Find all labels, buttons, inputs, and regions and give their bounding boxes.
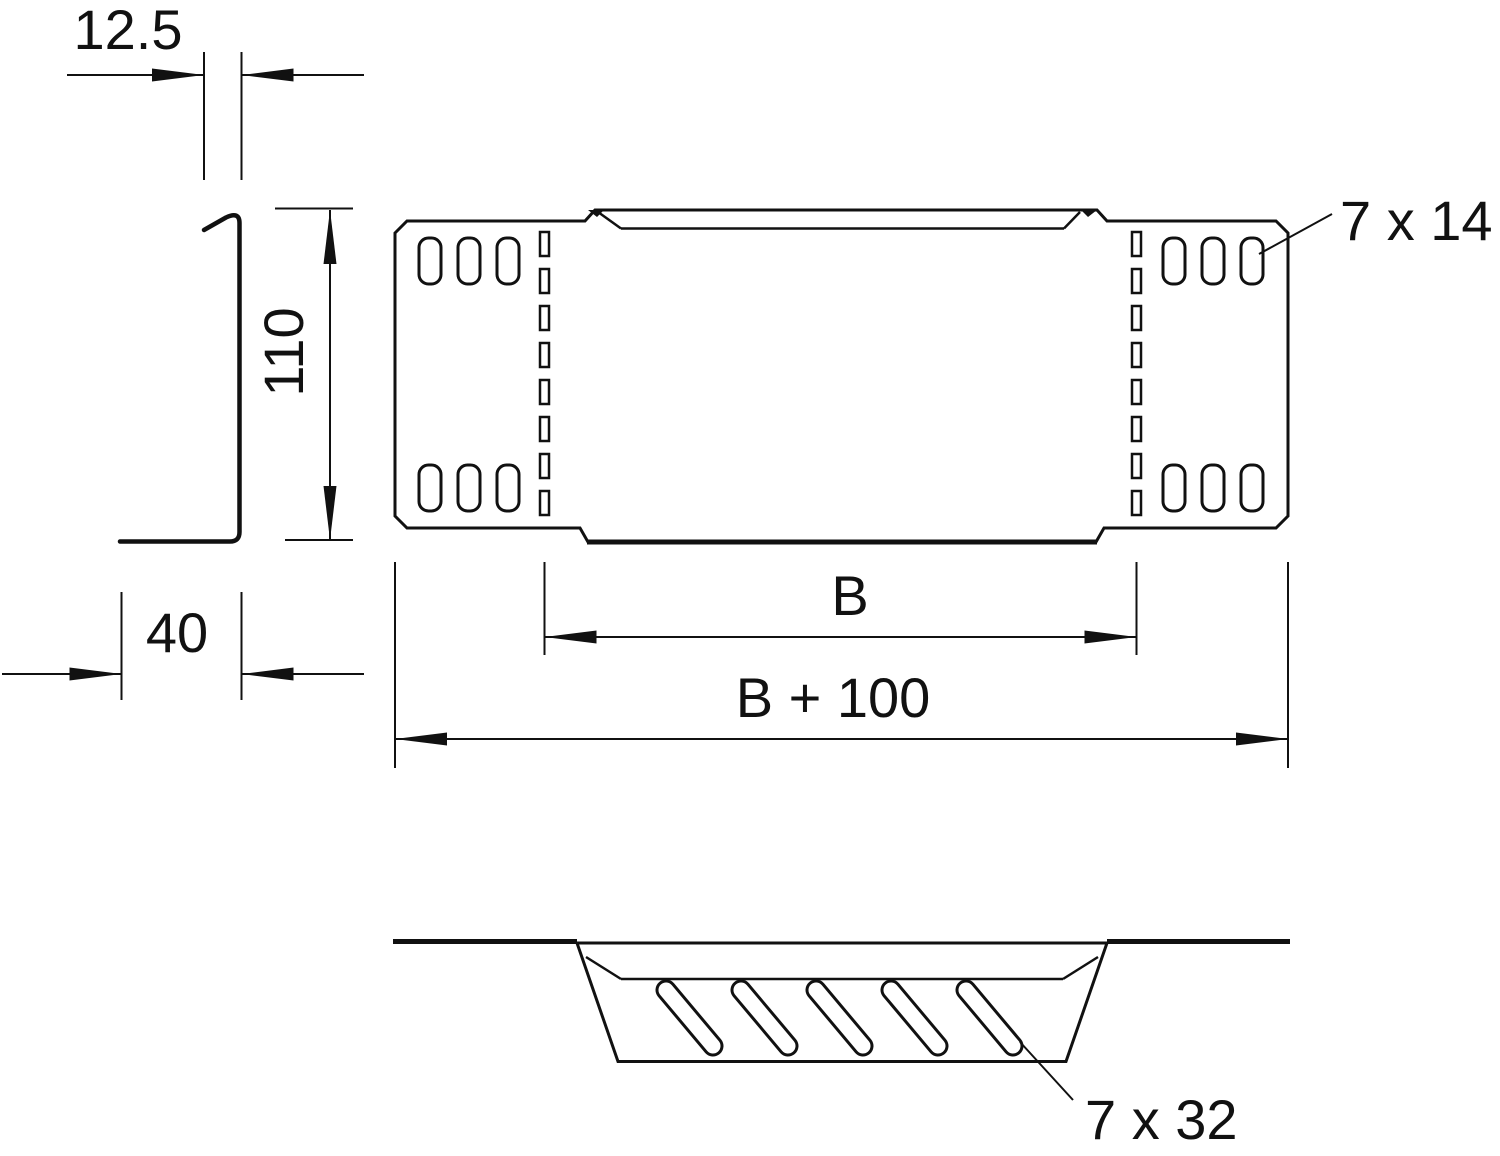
slot-size-label-small: 7 x 14 [1340, 189, 1493, 252]
arrowhead-down [324, 486, 337, 540]
callout-7x14: 7 x 14 [1259, 189, 1493, 254]
slot-group-top-left [419, 238, 519, 284]
perforation-rect [540, 380, 549, 404]
section-view: 7 x 32 [393, 942, 1290, 1152]
perforation-rect [1132, 380, 1141, 404]
leader-line [1020, 1042, 1073, 1100]
arrowhead-right [152, 69, 204, 82]
technical-drawing-canvas: 12.5 110 40 [0, 0, 1500, 1156]
arrowhead-left [242, 69, 294, 82]
perforation-rect [1132, 454, 1141, 478]
plan-slot [497, 238, 519, 284]
perforation-rect [540, 232, 549, 256]
arrowhead-left [242, 668, 294, 681]
dim-label-overall-width: B + 100 [736, 666, 931, 729]
slot-group-top-right [1163, 238, 1263, 284]
perforation-rect [540, 417, 549, 441]
diagonal-slot [666, 990, 713, 1046]
dimension-B: B [545, 562, 1137, 655]
dim-label-height: 110 [252, 307, 315, 396]
perforation-rect [1132, 417, 1141, 441]
dim-label-thickness: 12.5 [74, 0, 183, 61]
arrowhead-right [70, 668, 122, 681]
plan-slot [458, 238, 480, 284]
plan-slot [1163, 238, 1185, 284]
perforation-rect [540, 491, 549, 515]
slot-group-bottom-right [1163, 465, 1263, 511]
plan-slot [1163, 465, 1185, 511]
perforation-rect [1132, 491, 1141, 515]
arrowhead-left [395, 733, 447, 746]
plan-slot [1202, 465, 1224, 511]
slot-size-label-large: 7 x 32 [1085, 1088, 1238, 1151]
diagonal-slot [891, 990, 938, 1046]
arrowhead-right [1085, 631, 1137, 644]
diagonal-slots [666, 990, 1013, 1046]
perforation-rect [1132, 269, 1141, 293]
plan-slot [1241, 465, 1263, 511]
perforation-rect [540, 306, 549, 330]
arrowhead-up [324, 210, 337, 264]
diagonal-slot [741, 990, 788, 1046]
dimension-12-5: 12.5 [67, 0, 364, 180]
callout-7x32: 7 x 32 [1020, 1042, 1238, 1151]
diagonal-slot [966, 990, 1013, 1046]
dimension-110: 110 [252, 209, 353, 541]
perforation-rect [540, 269, 549, 293]
perforation-rect [1132, 232, 1141, 256]
side-profile-view [120, 215, 240, 541]
plan-slot [458, 465, 480, 511]
profile-sheet-outline [120, 215, 240, 541]
tab-fold-diagonal-right [1063, 957, 1098, 979]
dim-label-inner-width: B [831, 564, 868, 627]
perforation-rect [540, 454, 549, 478]
perforation-rect [1132, 343, 1141, 367]
dim-label-flange-width: 40 [146, 601, 208, 664]
slot-group-bottom-left [419, 465, 519, 511]
dimension-40: 40 [2, 592, 364, 700]
plan-slot [419, 238, 441, 284]
perforation-rect [540, 343, 549, 367]
plate-outline [395, 210, 1288, 542]
plan-view: 7 x 14 [395, 189, 1493, 542]
diagonal-slot [816, 990, 863, 1046]
arrowhead-left [545, 631, 597, 644]
tab-outline [577, 943, 1107, 1062]
plan-slot [497, 465, 519, 511]
plan-slot [1241, 238, 1263, 284]
drawing-page: 12.5 110 40 [0, 0, 1500, 1156]
perforation-rect [1132, 306, 1141, 330]
plan-slot [1202, 238, 1224, 284]
arrowhead-right [1236, 733, 1288, 746]
tab-fold-diagonal-left [586, 957, 621, 979]
plan-slot [419, 465, 441, 511]
